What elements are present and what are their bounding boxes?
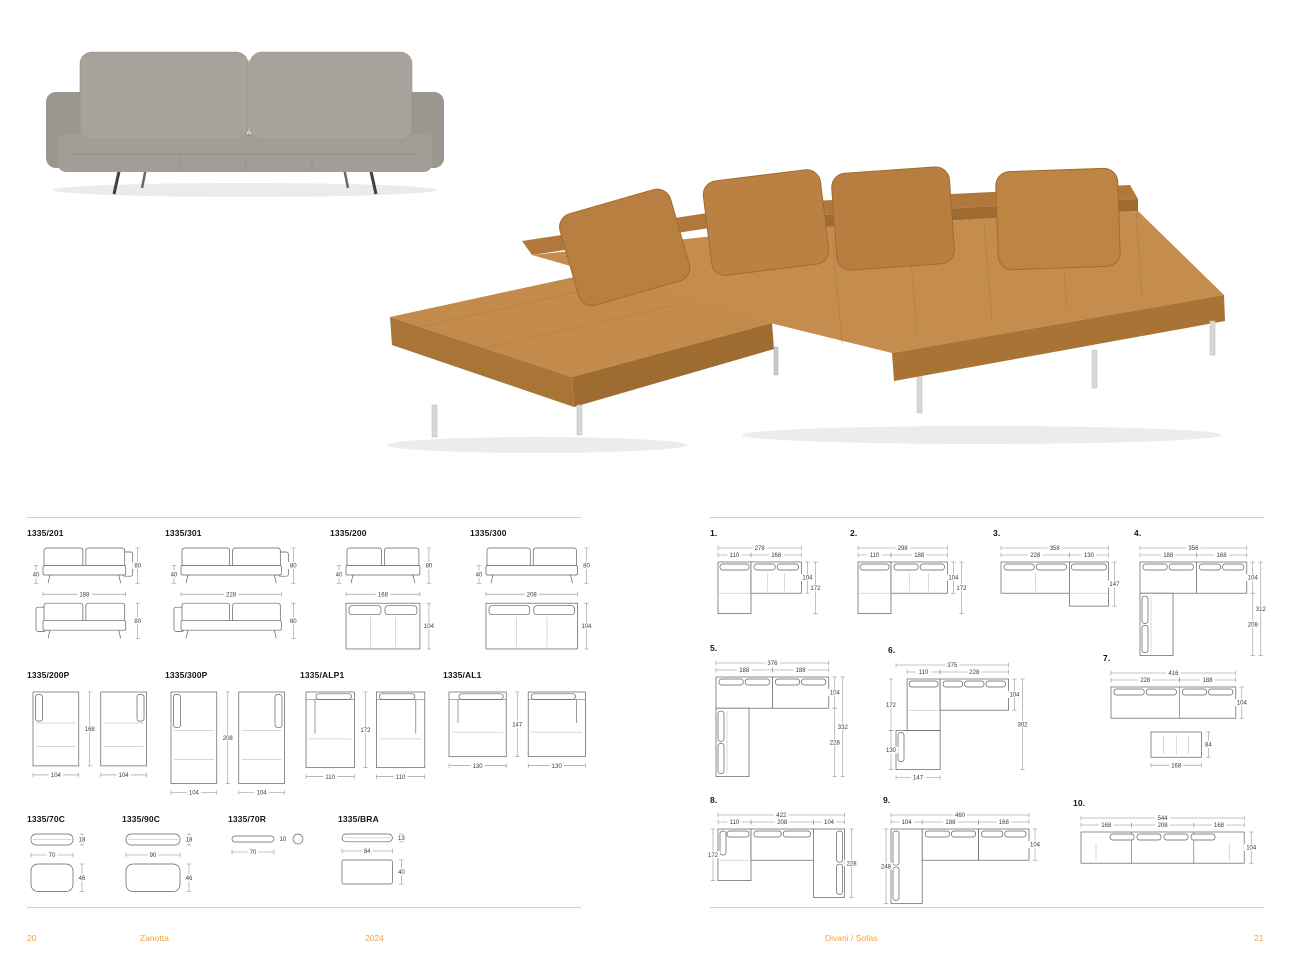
dimension-label: 80 bbox=[290, 564, 297, 570]
dimension-label: 104 bbox=[189, 791, 200, 797]
config-number: 3. bbox=[993, 528, 1143, 538]
dimension-label: 104 bbox=[830, 691, 841, 697]
model-spec-1335-70R: 1335/70R 1070 bbox=[228, 814, 328, 862]
diagram-config-9: 460104188168248104 bbox=[883, 809, 1058, 914]
dimension-label: 208 bbox=[1248, 623, 1259, 629]
config-number: 9. bbox=[883, 795, 1058, 805]
model-label: 1335/AL1 bbox=[443, 670, 581, 680]
config-1: 1. 278110168104172 bbox=[710, 528, 845, 642]
dimension-label: 130 bbox=[886, 748, 897, 754]
right-page-top-rule bbox=[710, 517, 1264, 518]
model-label: 1335/300P bbox=[165, 670, 300, 680]
dimension-label: 80 bbox=[134, 564, 141, 570]
dimension-label: 104 bbox=[1248, 576, 1259, 582]
dimension-label: 80 bbox=[583, 564, 590, 570]
dimension-label: 130 bbox=[473, 764, 484, 770]
diagram-config-1: 278110168104172 bbox=[710, 542, 845, 642]
diagram-config-10: 544168208168104 bbox=[1073, 812, 1273, 874]
config-number: 1. bbox=[710, 528, 845, 538]
diagram-1335-70R: 1070 bbox=[228, 828, 328, 862]
dimension-label: 168 bbox=[85, 727, 96, 733]
dimension-label: 172 bbox=[886, 703, 897, 709]
dimension-label: 278 bbox=[755, 546, 766, 552]
dimension-label: 147 bbox=[1109, 582, 1120, 588]
dimension-label: 104 bbox=[257, 791, 268, 797]
dimension-label: 70 bbox=[250, 850, 257, 856]
dimension-label: 46 bbox=[79, 876, 86, 882]
config-number: 5. bbox=[710, 643, 870, 653]
dimension-label: 168 bbox=[999, 820, 1010, 826]
model-spec-1335-201: 1335/201 408018880 bbox=[27, 528, 162, 644]
config-2: 2. 298110188104172 bbox=[850, 528, 990, 642]
config-5: 5. 376188188104228332 bbox=[710, 643, 870, 785]
dimension-label: 110 bbox=[325, 775, 335, 781]
dimension-label: 104 bbox=[582, 624, 593, 630]
dimension-label: 460 bbox=[955, 813, 966, 819]
model-label: 1335/70C bbox=[27, 814, 122, 824]
dimension-label: 208 bbox=[223, 736, 234, 742]
dimension-label: 358 bbox=[1050, 546, 1061, 552]
diagram-1335-200: 4080168104 bbox=[330, 542, 460, 654]
model-spec-1335-90C: 1335/90C 189046 bbox=[122, 814, 222, 892]
tan-sectional-illustration bbox=[372, 145, 1237, 475]
config-number: 4. bbox=[1134, 528, 1284, 538]
diagram-1335-BRA: 138440 bbox=[338, 828, 438, 886]
dimension-label: 110 bbox=[919, 670, 929, 676]
dimension-label: 46 bbox=[186, 876, 193, 882]
dimension-label: 104 bbox=[1009, 693, 1020, 699]
dimension-label: 104 bbox=[948, 576, 959, 582]
dimension-label: 172 bbox=[956, 586, 967, 592]
diagram-1335-ALP1: 172110110 bbox=[300, 684, 435, 786]
diagram-config-3: 358228130147 bbox=[993, 542, 1143, 632]
dimension-label: 188 bbox=[914, 553, 925, 559]
dimension-label: 90 bbox=[150, 853, 157, 859]
dimension-label: 13 bbox=[398, 836, 405, 842]
diagram-config-5: 376188188104228332 bbox=[710, 657, 870, 785]
model-spec-1335-70C: 1335/70C 187046 bbox=[27, 814, 122, 892]
config-10: 10. 544168208168104 bbox=[1073, 798, 1273, 874]
dimension-label: 208 bbox=[1158, 823, 1169, 829]
model-spec-1335-ALP1: 1335/ALP1 172110110 bbox=[300, 670, 435, 786]
dimension-label: 40 bbox=[398, 870, 405, 876]
dimension-label: 228 bbox=[969, 670, 980, 676]
diagram-1335-90C: 189046 bbox=[122, 828, 222, 892]
dimension-label: 40 bbox=[336, 572, 343, 578]
dimension-label: 40 bbox=[476, 572, 483, 578]
dimension-label: 10 bbox=[280, 837, 287, 843]
dimension-label: 168 bbox=[1101, 823, 1112, 829]
diagram-1335-201: 408018880 bbox=[27, 542, 162, 644]
model-label: 1335/70R bbox=[228, 814, 328, 824]
config-number: 8. bbox=[710, 795, 875, 805]
dimension-label: 172 bbox=[810, 586, 821, 592]
dimension-label: 104 bbox=[802, 576, 813, 582]
dimension-label: 332 bbox=[838, 725, 849, 731]
left-page-bottom-rule bbox=[27, 907, 581, 908]
brand-name: Zanotta bbox=[140, 933, 169, 943]
dimension-label: 298 bbox=[898, 546, 909, 552]
config-3: 3. 358228130147 bbox=[993, 528, 1143, 632]
dimension-label: 104 bbox=[902, 820, 913, 826]
diagram-1335-300: 4080208104 bbox=[470, 542, 582, 654]
diagram-config-4: 356188168104208312 bbox=[1134, 542, 1284, 667]
dimension-label: 40 bbox=[33, 572, 40, 578]
dimension-label: 104 bbox=[1030, 843, 1041, 849]
left-page-top-rule bbox=[27, 517, 581, 518]
config-number: 7. bbox=[1103, 653, 1263, 663]
diagram-config-7: 41622818810416884 bbox=[1103, 667, 1263, 777]
dimension-label: 188 bbox=[79, 592, 90, 598]
page-number-left: 20 bbox=[27, 933, 36, 943]
config-9: 9. 460104188168248104 bbox=[883, 795, 1058, 914]
dimension-label: 168 bbox=[1171, 763, 1182, 769]
dimension-label: 228 bbox=[847, 861, 858, 867]
config-number: 6. bbox=[888, 645, 1053, 655]
model-spec-1335-301: 1335/301 408022880 bbox=[165, 528, 320, 644]
diagram-config-2: 298110188104172 bbox=[850, 542, 990, 642]
dimension-label: 376 bbox=[767, 661, 778, 667]
dimension-label: 168 bbox=[1214, 823, 1225, 829]
dimension-label: 416 bbox=[1168, 671, 1179, 677]
diagram-config-6: 375110228172130104302147 bbox=[888, 659, 1053, 794]
dimension-label: 188 bbox=[945, 820, 956, 826]
dimension-label: 356 bbox=[1188, 546, 1199, 552]
dimension-label: 168 bbox=[1217, 553, 1228, 559]
dimension-label: 208 bbox=[527, 592, 538, 598]
model-spec-1335-AL1: 1335/AL1 147130130 bbox=[443, 670, 581, 776]
model-label: 1335/300 bbox=[470, 528, 582, 538]
section-title: Divani / Sofas bbox=[825, 933, 877, 943]
dimension-label: 168 bbox=[771, 553, 782, 559]
config-4: 4. 356188168104208312 bbox=[1134, 528, 1284, 667]
dimension-label: 188 bbox=[796, 668, 807, 674]
dimension-label: 130 bbox=[552, 764, 563, 770]
dimension-label: 40 bbox=[171, 572, 178, 578]
model-label: 1335/ALP1 bbox=[300, 670, 435, 680]
dimension-label: 248 bbox=[881, 864, 892, 870]
dimension-label: 188 bbox=[1203, 678, 1214, 684]
dimension-label: 172 bbox=[360, 728, 371, 734]
config-8: 8. 422110208104172228 bbox=[710, 795, 875, 909]
dimension-label: 130 bbox=[1084, 553, 1095, 559]
dimension-label: 172 bbox=[708, 853, 719, 859]
dimension-label: 104 bbox=[1237, 701, 1248, 707]
dimension-label: 110 bbox=[730, 553, 740, 559]
config-number: 10. bbox=[1073, 798, 1273, 808]
dimension-label: 544 bbox=[1158, 816, 1169, 822]
dimension-label: 84 bbox=[364, 849, 371, 855]
diagram-1335-301: 408022880 bbox=[165, 542, 320, 644]
dimension-label: 302 bbox=[1017, 722, 1028, 728]
dimension-label: 147 bbox=[913, 776, 924, 782]
dimension-label: 110 bbox=[870, 553, 880, 559]
dimension-label: 422 bbox=[776, 813, 787, 819]
dimension-label: 104 bbox=[51, 773, 62, 779]
dimension-label: 104 bbox=[824, 820, 835, 826]
dimension-label: 208 bbox=[777, 820, 788, 826]
model-spec-1335-300P: 1335/300P 208104104 bbox=[165, 670, 300, 802]
diagram-config-8: 422110208104172228 bbox=[710, 809, 875, 909]
dimension-label: 188 bbox=[739, 668, 750, 674]
dimension-label: 18 bbox=[79, 838, 86, 844]
dimension-label: 228 bbox=[830, 741, 841, 747]
model-label: 1335/200 bbox=[330, 528, 460, 538]
dimension-label: 18 bbox=[186, 838, 193, 844]
dimension-label: 84 bbox=[1205, 743, 1212, 749]
dimension-label: 147 bbox=[512, 722, 523, 728]
dimension-label: 110 bbox=[730, 820, 740, 826]
model-spec-1335-200P: 1335/200P 168104104 bbox=[27, 670, 162, 784]
diagram-1335-70C: 187046 bbox=[27, 828, 122, 892]
diagram-1335-AL1: 147130130 bbox=[443, 684, 581, 776]
diagram-1335-300P: 208104104 bbox=[165, 684, 300, 802]
catalog-year: 2024 bbox=[365, 933, 384, 943]
dimension-label: 80 bbox=[134, 619, 141, 625]
dimension-label: 228 bbox=[1030, 553, 1041, 559]
dimension-label: 70 bbox=[49, 853, 56, 859]
model-label: 1335/BRA bbox=[338, 814, 438, 824]
tan-sectional-sofa-photo bbox=[372, 145, 1237, 475]
dimension-label: 188 bbox=[1163, 553, 1174, 559]
diagram-1335-200P: 168104104 bbox=[27, 684, 162, 784]
model-spec-1335-200: 1335/200 4080168104 bbox=[330, 528, 460, 654]
dimension-label: 312 bbox=[1256, 607, 1267, 613]
model-spec-1335-BRA: 1335/BRA 138440 bbox=[338, 814, 438, 886]
model-label: 1335/200P bbox=[27, 670, 162, 680]
page-number-right: 21 bbox=[1254, 933, 1263, 943]
dimension-label: 104 bbox=[119, 773, 130, 779]
model-spec-1335-300: 1335/300 4080208104 bbox=[470, 528, 582, 654]
dimension-label: 80 bbox=[426, 564, 433, 570]
model-label: 1335/301 bbox=[165, 528, 320, 538]
dimension-label: 110 bbox=[396, 775, 406, 781]
config-7: 7. 41622818810416884 bbox=[1103, 653, 1263, 777]
config-6: 6. 375110228172130104302147 bbox=[888, 645, 1053, 794]
dimension-label: 228 bbox=[1140, 678, 1151, 684]
dimension-label: 80 bbox=[290, 619, 297, 625]
dimension-label: 104 bbox=[1246, 846, 1257, 852]
dimension-label: 104 bbox=[424, 624, 435, 630]
dimension-label: 228 bbox=[226, 592, 237, 598]
dimension-label: 375 bbox=[947, 663, 958, 669]
dimension-label: 168 bbox=[378, 592, 389, 598]
model-label: 1335/201 bbox=[27, 528, 162, 538]
config-number: 2. bbox=[850, 528, 990, 538]
model-label: 1335/90C bbox=[122, 814, 222, 824]
